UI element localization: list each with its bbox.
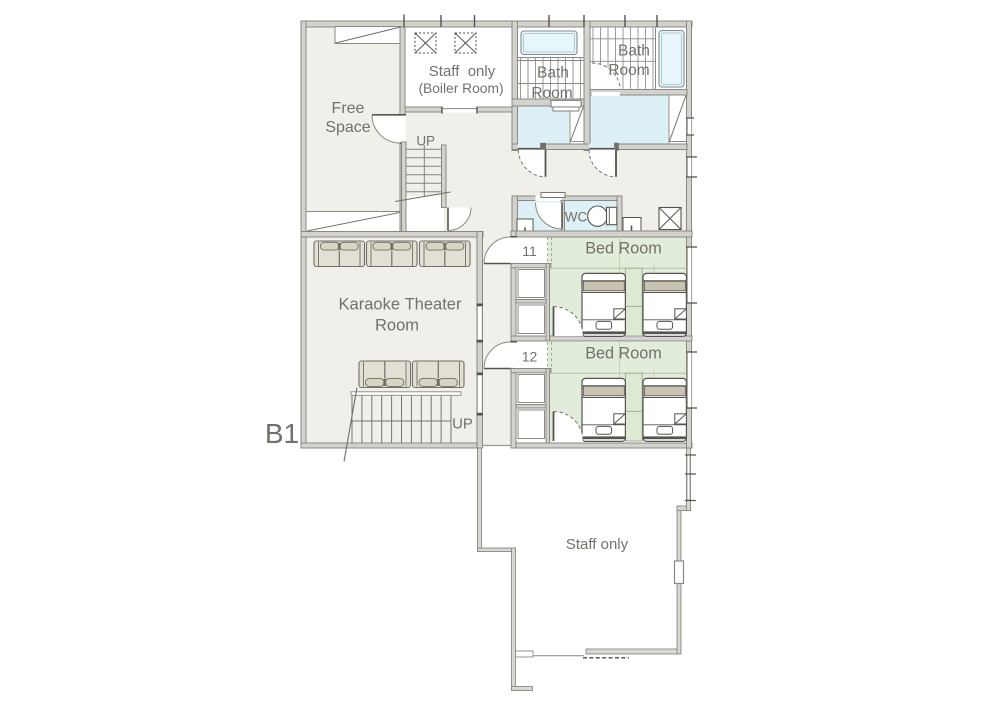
svg-text:Bath: Bath	[537, 65, 569, 82]
svg-text:12: 12	[522, 349, 538, 365]
svg-text:Free: Free	[332, 100, 365, 117]
svg-text:(Boiler Room): (Boiler Room)	[418, 81, 503, 96]
svg-text:WC: WC	[565, 210, 588, 225]
svg-text:Bed Room: Bed Room	[585, 240, 661, 258]
svg-text:Room: Room	[608, 62, 649, 79]
svg-text:Bath: Bath	[618, 43, 650, 60]
svg-text:UP: UP	[452, 416, 473, 433]
svg-text:Staff only: Staff only	[566, 536, 629, 553]
svg-text:Karaoke Theater: Karaoke Theater	[339, 296, 462, 314]
svg-text:11: 11	[522, 243, 537, 259]
svg-text:Space: Space	[325, 119, 370, 136]
svg-text:B1: B1	[265, 418, 299, 449]
svg-text:Room: Room	[531, 85, 572, 102]
svg-text:Bed Room: Bed Room	[585, 345, 661, 363]
svg-text:Room: Room	[375, 317, 419, 335]
svg-text:Staff only: Staff only	[429, 63, 496, 80]
svg-text:UP: UP	[416, 134, 435, 149]
